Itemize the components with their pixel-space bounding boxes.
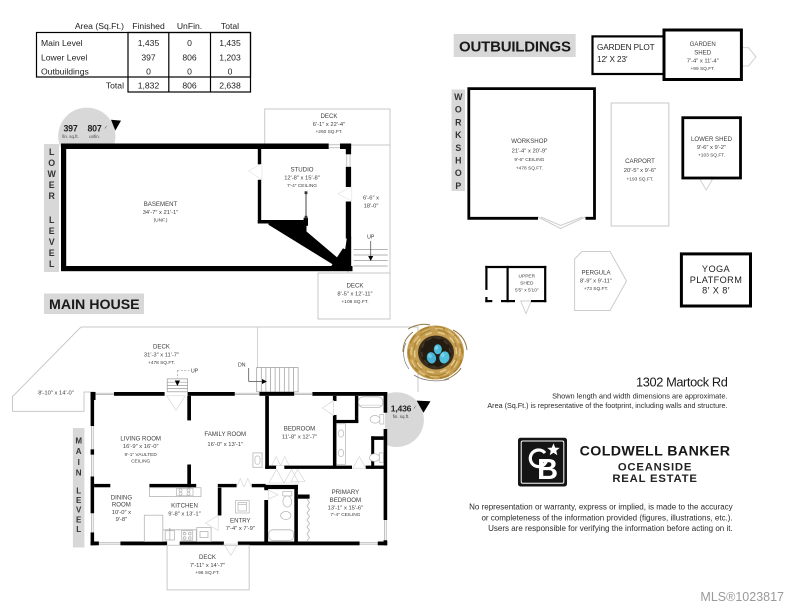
svg-text:+73 SQ.FT.: +73 SQ.FT.: [584, 286, 608, 292]
svg-text:8′ X 8′: 8′ X 8′: [702, 286, 730, 296]
svg-text:fin. sq.ft.: fin. sq.ft.: [62, 134, 79, 139]
svg-text:E: E: [49, 226, 55, 236]
svg-text:13′-1″ x 15′-6″: 13′-1″ x 15′-6″: [328, 505, 364, 511]
svg-text:8′-10″ x 14′-0″: 8′-10″ x 14′-0″: [38, 391, 74, 397]
svg-text:+478 SQ.FT.: +478 SQ.FT.: [148, 360, 175, 366]
svg-text:+99 SQ.FT.: +99 SQ.FT.: [690, 66, 714, 72]
svg-text:Area (Sq.Ft.) is representativ: Area (Sq.Ft.) is representative of the f…: [487, 401, 727, 410]
svg-text:B: B: [537, 454, 558, 486]
svg-text:ROOM: ROOM: [112, 502, 131, 509]
svg-text:7′-4″ x 11′-4″: 7′-4″ x 11′-4″: [687, 59, 719, 65]
svg-text:PLATFORM: PLATFORM: [690, 275, 743, 285]
svg-text:L: L: [76, 487, 81, 496]
svg-text:806: 806: [182, 81, 197, 91]
svg-text:2,638: 2,638: [219, 81, 241, 91]
svg-text:UnFin.: UnFin.: [177, 21, 202, 31]
svg-text:31′-3″ x 11′-7″: 31′-3″ x 11′-7″: [144, 352, 179, 358]
svg-text:L: L: [49, 259, 55, 269]
svg-text:+478 SQ.FT.: +478 SQ.FT.: [516, 165, 543, 171]
svg-text:O: O: [455, 168, 462, 178]
svg-text:+193 SQ.FT.: +193 SQ.FT.: [626, 176, 653, 182]
svg-text:18′-0″: 18′-0″: [364, 204, 379, 210]
svg-text:16′-0″ x 13′-1″: 16′-0″ x 13′-1″: [207, 442, 243, 448]
svg-text:806: 806: [182, 53, 197, 63]
svg-text:1,435: 1,435: [219, 38, 241, 48]
svg-text:WORKSHOP: WORKSHOP: [511, 138, 547, 145]
svg-text:LOWER SHED: LOWER SHED: [691, 136, 733, 143]
svg-text:9′-8″ x 13′-1″: 9′-8″ x 13′-1″: [168, 511, 200, 517]
svg-text:R: R: [49, 191, 56, 201]
svg-text:397: 397: [141, 53, 156, 63]
svg-text:0: 0: [187, 38, 192, 48]
svg-text:+260 SQ.FT.: +260 SQ.FT.: [315, 129, 342, 135]
svg-text:L: L: [49, 147, 55, 157]
svg-text:M: M: [75, 437, 82, 446]
svg-text:V: V: [76, 506, 82, 515]
svg-text:7′-11″ x 14′-7″: 7′-11″ x 14′-7″: [190, 563, 225, 569]
svg-text:0: 0: [228, 67, 233, 77]
svg-text:DINING: DINING: [111, 495, 133, 502]
svg-text:SHED: SHED: [520, 281, 534, 287]
svg-text:Total: Total: [221, 21, 239, 31]
svg-text:+103 SQ.FT.: +103 SQ.FT.: [698, 153, 725, 159]
svg-text:9′-8″: 9′-8″: [116, 517, 128, 523]
svg-text:DECK: DECK: [321, 113, 338, 120]
svg-text:R: R: [455, 117, 462, 127]
svg-text:10′-0″ x: 10′-0″ x: [112, 510, 131, 516]
svg-text:16′-9″ x 16′-0″: 16′-9″ x 16′-0″: [123, 444, 159, 450]
svg-text:FAMILY ROOM: FAMILY ROOM: [204, 431, 246, 438]
svg-text:Users are responsible for veri: Users are responsible for verifying the …: [488, 524, 733, 533]
svg-text:Main Level: Main Level: [41, 38, 83, 48]
svg-text:8′-9″ x 9′-11″: 8′-9″ x 9′-11″: [580, 278, 612, 284]
svg-text:9′-6″ x 9′-2″: 9′-6″ x 9′-2″: [697, 145, 726, 151]
svg-text:ENTRY: ENTRY: [230, 517, 251, 524]
svg-text:Total: Total: [106, 81, 124, 91]
svg-text:or completeness of the informa: or completeness of the information provi…: [481, 513, 732, 522]
svg-text:UPPER: UPPER: [519, 274, 536, 280]
svg-text:Finished: Finished: [132, 21, 165, 31]
svg-text:+108 SQ.FT.: +108 SQ.FT.: [341, 299, 368, 305]
svg-text:fin. sq.ft.: fin. sq.ft.: [393, 414, 410, 419]
svg-text:E: E: [76, 496, 82, 505]
svg-text:KITCHEN: KITCHEN: [171, 503, 198, 510]
svg-text:5′5″ x 5′10″: 5′5″ x 5′10″: [515, 288, 539, 294]
svg-text:V: V: [49, 237, 55, 247]
svg-text:COLDWELL BANKER: COLDWELL BANKER: [580, 444, 731, 460]
svg-text:DECK: DECK: [199, 554, 216, 561]
svg-text:11′-8″ x 12′-7″: 11′-8″ x 12′-7″: [282, 435, 317, 441]
svg-text:BASEMENT: BASEMENT: [144, 201, 178, 208]
svg-text:SHED: SHED: [694, 50, 712, 57]
svg-text:7′-4″ CEILING: 7′-4″ CEILING: [330, 512, 360, 518]
svg-text:REAL ESTATE: REAL ESTATE: [612, 473, 697, 485]
svg-text:7′-4″ x 7′-9″: 7′-4″ x 7′-9″: [226, 526, 255, 532]
svg-text:MLS®1023817: MLS®1023817: [700, 590, 784, 604]
svg-text:N: N: [76, 469, 82, 478]
svg-text:8′-5″ x 12′-11″: 8′-5″ x 12′-11″: [337, 292, 372, 298]
svg-text:K: K: [455, 130, 462, 140]
svg-text:+96 SQ.FT.: +96 SQ.FT.: [195, 570, 219, 576]
svg-text:1,435: 1,435: [138, 38, 160, 48]
svg-text:PERGULA: PERGULA: [581, 269, 611, 276]
svg-text:No representation or warranty,: No representation or warranty, express o…: [469, 503, 733, 512]
svg-text:PRIMARY: PRIMARY: [332, 489, 360, 496]
svg-text:807: 807: [87, 124, 101, 134]
svg-text:BEDROOM: BEDROOM: [330, 497, 362, 504]
svg-text:9′-1″ VAULTED: 9′-1″ VAULTED: [125, 452, 158, 458]
svg-text:W: W: [454, 92, 463, 102]
svg-text:20′-5″ x 9′-6″: 20′-5″ x 9′-6″: [624, 168, 656, 174]
svg-text:O: O: [455, 105, 462, 115]
svg-text:H: H: [455, 156, 461, 166]
svg-text:OUTBUILDINGS: OUTBUILDINGS: [459, 39, 571, 56]
svg-text:UP: UP: [367, 235, 375, 241]
svg-text:12′-8″ x 15′-8″: 12′-8″ x 15′-8″: [284, 175, 320, 181]
svg-text:DN: DN: [238, 363, 246, 369]
svg-text:W: W: [48, 169, 57, 179]
svg-text:BEDROOM: BEDROOM: [284, 426, 316, 433]
svg-text:Lower Level: Lower Level: [41, 53, 87, 63]
svg-text:1,832: 1,832: [138, 81, 160, 91]
svg-text:S: S: [455, 143, 461, 153]
svg-text:OCEANSIDE: OCEANSIDE: [618, 462, 692, 474]
svg-text:DECK: DECK: [347, 283, 364, 290]
svg-text:1302 Martock Rd: 1302 Martock Rd: [636, 375, 728, 390]
svg-text:YOGA: YOGA: [702, 264, 731, 274]
svg-text:E: E: [49, 180, 55, 190]
svg-text:I: I: [78, 458, 80, 467]
svg-text:9′-6″ CEILING: 9′-6″ CEILING: [514, 157, 544, 163]
svg-text:GARDEN: GARDEN: [690, 41, 716, 48]
svg-text:MAIN HOUSE: MAIN HOUSE: [49, 297, 140, 313]
svg-text:0: 0: [146, 67, 151, 77]
svg-text:LIVING ROOM: LIVING ROOM: [120, 436, 161, 443]
svg-text:E: E: [49, 248, 55, 258]
svg-text:1,436: 1,436: [391, 404, 412, 414]
svg-text:(UNF.): (UNF.): [154, 217, 168, 223]
svg-text:CEILING: CEILING: [131, 459, 150, 465]
svg-text:STUDIO: STUDIO: [290, 166, 313, 173]
svg-text:Area (Sq.Ft.): Area (Sq.Ft.): [75, 21, 124, 31]
svg-text:CARPORT: CARPORT: [625, 158, 655, 165]
svg-text:Outbuildings: Outbuildings: [41, 67, 89, 77]
svg-text:397: 397: [63, 124, 77, 134]
svg-text:Shown length and width dimensi: Shown length and width dimensions are ap…: [552, 392, 727, 401]
svg-text:6′-1″ x 22′-4″: 6′-1″ x 22′-4″: [313, 122, 345, 128]
svg-text:GARDEN PLOT: GARDEN PLOT: [597, 43, 655, 52]
svg-text:O: O: [48, 158, 55, 168]
svg-text:L: L: [49, 215, 55, 225]
svg-text:7′-4″ CEILING: 7′-4″ CEILING: [287, 183, 317, 189]
svg-text:34′-7″ x 21′-1″: 34′-7″ x 21′-1″: [143, 210, 179, 216]
svg-text:L: L: [76, 525, 81, 534]
svg-text:P: P: [455, 181, 461, 191]
svg-text:A: A: [76, 447, 82, 456]
svg-text:E: E: [76, 515, 82, 524]
svg-text:12′ X 23′: 12′ X 23′: [597, 55, 628, 64]
svg-text:0: 0: [187, 67, 192, 77]
svg-text:DECK: DECK: [153, 343, 170, 350]
svg-text:unfin.: unfin.: [89, 134, 100, 139]
svg-text:21′-4″ x 20′-9″: 21′-4″ x 20′-9″: [512, 148, 548, 154]
svg-text:UP: UP: [191, 369, 199, 375]
svg-text:6′-6″ x: 6′-6″ x: [363, 196, 379, 202]
svg-text:1,203: 1,203: [219, 53, 241, 63]
